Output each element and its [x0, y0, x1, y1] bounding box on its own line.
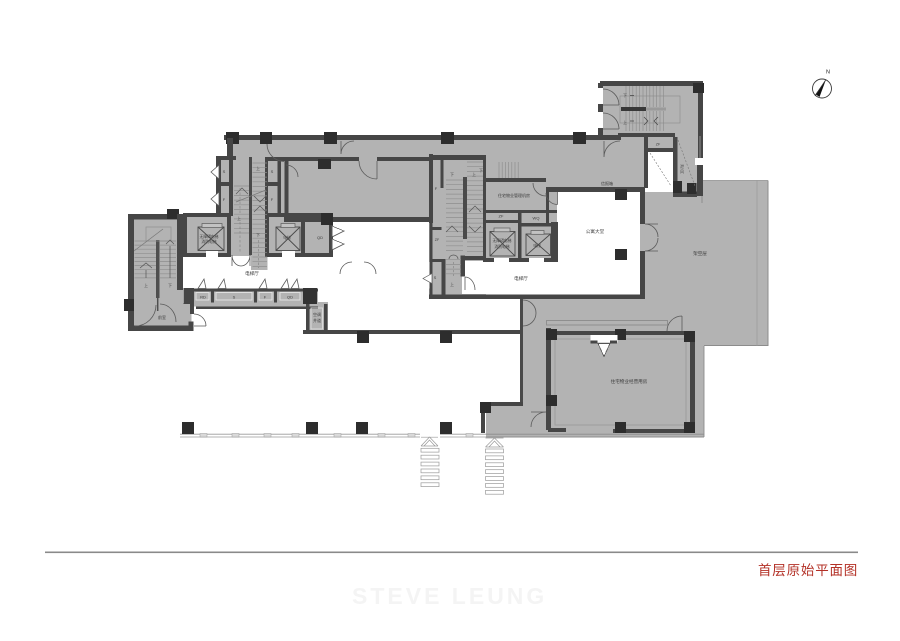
svg-text:住宅物业管理机房: 住宅物业管理机房	[498, 192, 530, 198]
svg-text:下: 下	[168, 284, 172, 288]
svg-text:首层原始平面图: 首层原始平面图	[758, 563, 858, 578]
svg-text:STEVE LEUNG: STEVE LEUNG	[352, 583, 547, 609]
svg-text:下: 下	[623, 94, 627, 98]
svg-text:RD: RD	[200, 295, 206, 300]
svg-text:S: S	[271, 169, 274, 174]
svg-text:N: N	[826, 70, 830, 76]
svg-text:上: 上	[450, 282, 454, 287]
svg-text:电梯厅: 电梯厅	[514, 275, 528, 282]
svg-text:前室: 前室	[158, 314, 166, 320]
svg-text:公寓大堂: 公寓大堂	[586, 228, 605, 235]
svg-text:WQ: WQ	[533, 216, 540, 221]
svg-text:上: 上	[623, 120, 627, 125]
svg-text:架空层: 架空层	[693, 250, 707, 257]
svg-text:S: S	[434, 275, 437, 280]
svg-text:住宅物业经营用房: 住宅物业经营用房	[611, 378, 648, 385]
svg-text:上: 上	[237, 216, 241, 221]
svg-text:下: 下	[450, 173, 454, 177]
svg-text:QD: QD	[287, 295, 293, 300]
svg-text:上: 上	[472, 172, 476, 177]
svg-text:电梯厅: 电梯厅	[245, 270, 259, 277]
svg-text:井道: 井道	[313, 317, 321, 323]
svg-text:下: 下	[479, 169, 483, 173]
svg-text:上: 上	[144, 283, 148, 288]
svg-text:ZF: ZF	[499, 214, 504, 219]
svg-text:QD: QD	[317, 235, 323, 240]
svg-text:风: 风	[680, 170, 684, 174]
svg-text:S: S	[223, 169, 226, 174]
svg-text:无障碍电梯: 无障碍电梯	[493, 238, 512, 243]
svg-text:上: 上	[256, 166, 260, 171]
svg-text:泄: 泄	[680, 164, 684, 169]
svg-text:信报箱: 信报箱	[601, 180, 613, 186]
svg-text:S: S	[233, 295, 236, 300]
svg-text:下: 下	[256, 234, 260, 238]
svg-text:空调: 空调	[313, 311, 321, 317]
